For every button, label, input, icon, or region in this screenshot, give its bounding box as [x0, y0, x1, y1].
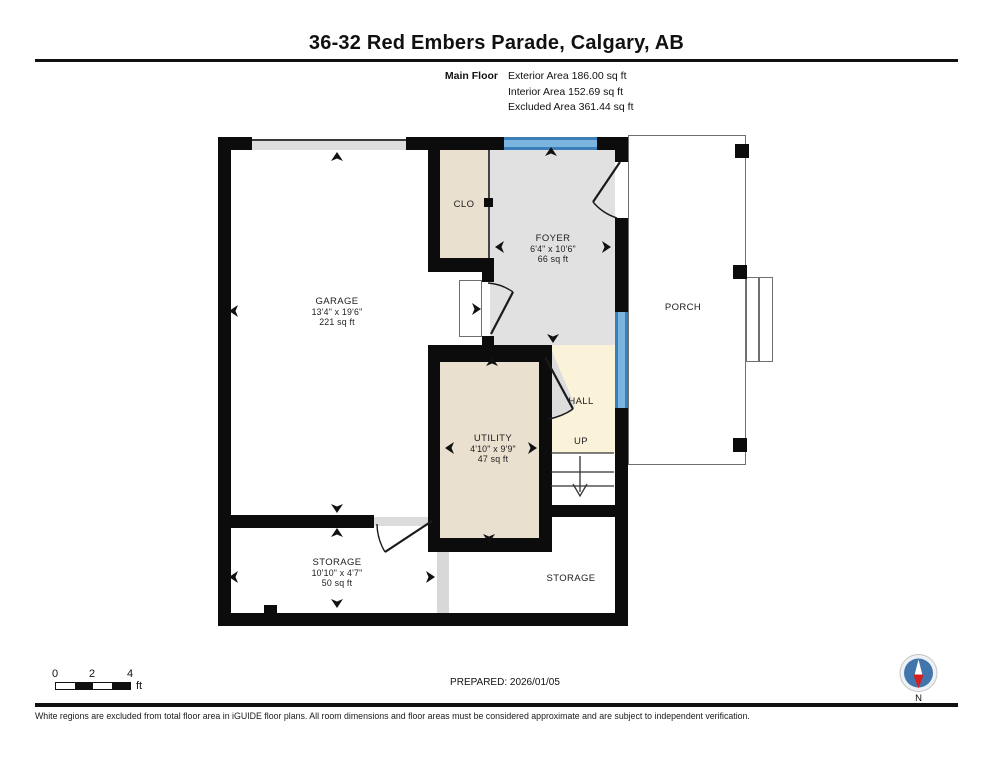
room-storage-right — [552, 517, 615, 613]
header-divider — [35, 59, 958, 62]
room-name: CLO — [436, 199, 492, 210]
porch-post — [733, 265, 747, 279]
storage-opening-strip — [437, 552, 449, 613]
scale-unit: ft — [136, 680, 142, 692]
window-hall-side — [615, 312, 628, 408]
room-area: 47 sq ft — [443, 454, 543, 464]
room-area: 50 sq ft — [273, 578, 401, 588]
porch-post — [735, 144, 749, 158]
wall-segment — [264, 605, 277, 614]
room-name: STORAGE — [521, 573, 621, 584]
window-foyer-front — [504, 137, 597, 150]
room-area: 66 sq ft — [493, 254, 613, 264]
room-name: UP — [551, 436, 611, 447]
stairs-down-arrow — [573, 484, 587, 496]
wall-segment — [428, 538, 552, 552]
room-name: HALL — [551, 396, 611, 407]
room-label-hall: HALL — [551, 396, 611, 407]
room-label-porch: PORCH — [653, 302, 713, 313]
room-label-storage-right: STORAGE — [521, 573, 621, 584]
porch-post — [733, 438, 747, 452]
room-label-closet: CLO — [436, 199, 492, 210]
interior-area-stat: Interior Area 152.69 sq ft — [508, 86, 768, 98]
room-label-storage-left: STORAGE 10'10" x 4'7" 50 sq ft — [273, 557, 401, 588]
scale-bar-segment — [75, 683, 94, 689]
room-name: FOYER — [493, 233, 613, 244]
room-name: GARAGE — [267, 296, 407, 307]
scale-tick-0: 0 — [47, 668, 63, 680]
scale-bar — [55, 682, 131, 690]
disclaimer-text: White regions are excluded from total fl… — [35, 711, 965, 721]
prepared-date: PREPARED: 2026/01/05 — [380, 677, 630, 688]
door-recess — [459, 280, 482, 337]
storage-door-threshold — [374, 517, 432, 526]
exterior-area-stat: Exterior Area 186.00 sq ft — [508, 70, 768, 82]
room-garage — [231, 150, 428, 515]
wall-segment — [428, 345, 552, 362]
wall-segment — [406, 137, 504, 150]
scale-bar-segment — [56, 683, 75, 689]
room-label-utility: UTILITY 4'10" x 9'9" 47 sq ft — [443, 433, 543, 464]
wall-segment — [218, 137, 231, 626]
wall-segment — [615, 137, 628, 162]
room-name: STORAGE — [273, 557, 401, 568]
page-title: 36-32 Red Embers Parade, Calgary, AB — [0, 32, 993, 55]
floor-plan-page: 36-32 Red Embers Parade, Calgary, AB Mai… — [0, 0, 993, 768]
room-label-up: UP — [551, 436, 611, 447]
room-dimensions: 4'10" x 9'9" — [443, 444, 543, 454]
room-name: PORCH — [653, 302, 713, 313]
scale-tick-4: 4 — [122, 668, 138, 680]
scale-bar-segment — [93, 683, 112, 689]
porch-step-divider — [758, 278, 760, 361]
room-dimensions: 10'10" x 4'7" — [273, 568, 401, 578]
room-dimensions: 6'4" x 10'6" — [493, 244, 613, 254]
porch-outline — [628, 135, 746, 465]
room-label-garage: GARAGE 13'4" x 19'6" 221 sq ft — [267, 296, 407, 327]
porch-steps — [746, 277, 773, 362]
wall-segment — [615, 408, 628, 626]
room-dimensions: 13'4" x 19'6" — [267, 307, 407, 317]
wall-segment — [432, 515, 440, 528]
footer-divider — [35, 703, 958, 707]
floor-label: Main Floor — [360, 70, 498, 82]
wall-segment — [218, 613, 628, 626]
scale-tick-2: 2 — [84, 668, 100, 680]
wall-segment — [218, 515, 374, 528]
compass-icon — [900, 655, 937, 692]
wall-segment — [428, 258, 494, 272]
excluded-area-stat: Excluded Area 361.44 sq ft — [508, 101, 768, 113]
wall-segment — [615, 218, 628, 312]
wall-segment — [482, 272, 494, 282]
wall-segment — [545, 505, 615, 517]
garage-door — [252, 139, 406, 150]
scale-bar-segment — [112, 683, 131, 689]
room-area: 221 sq ft — [267, 317, 407, 327]
room-name: UTILITY — [443, 433, 543, 444]
room-label-foyer: FOYER 6'4" x 10'6" 66 sq ft — [493, 233, 613, 264]
stairs — [551, 453, 614, 496]
